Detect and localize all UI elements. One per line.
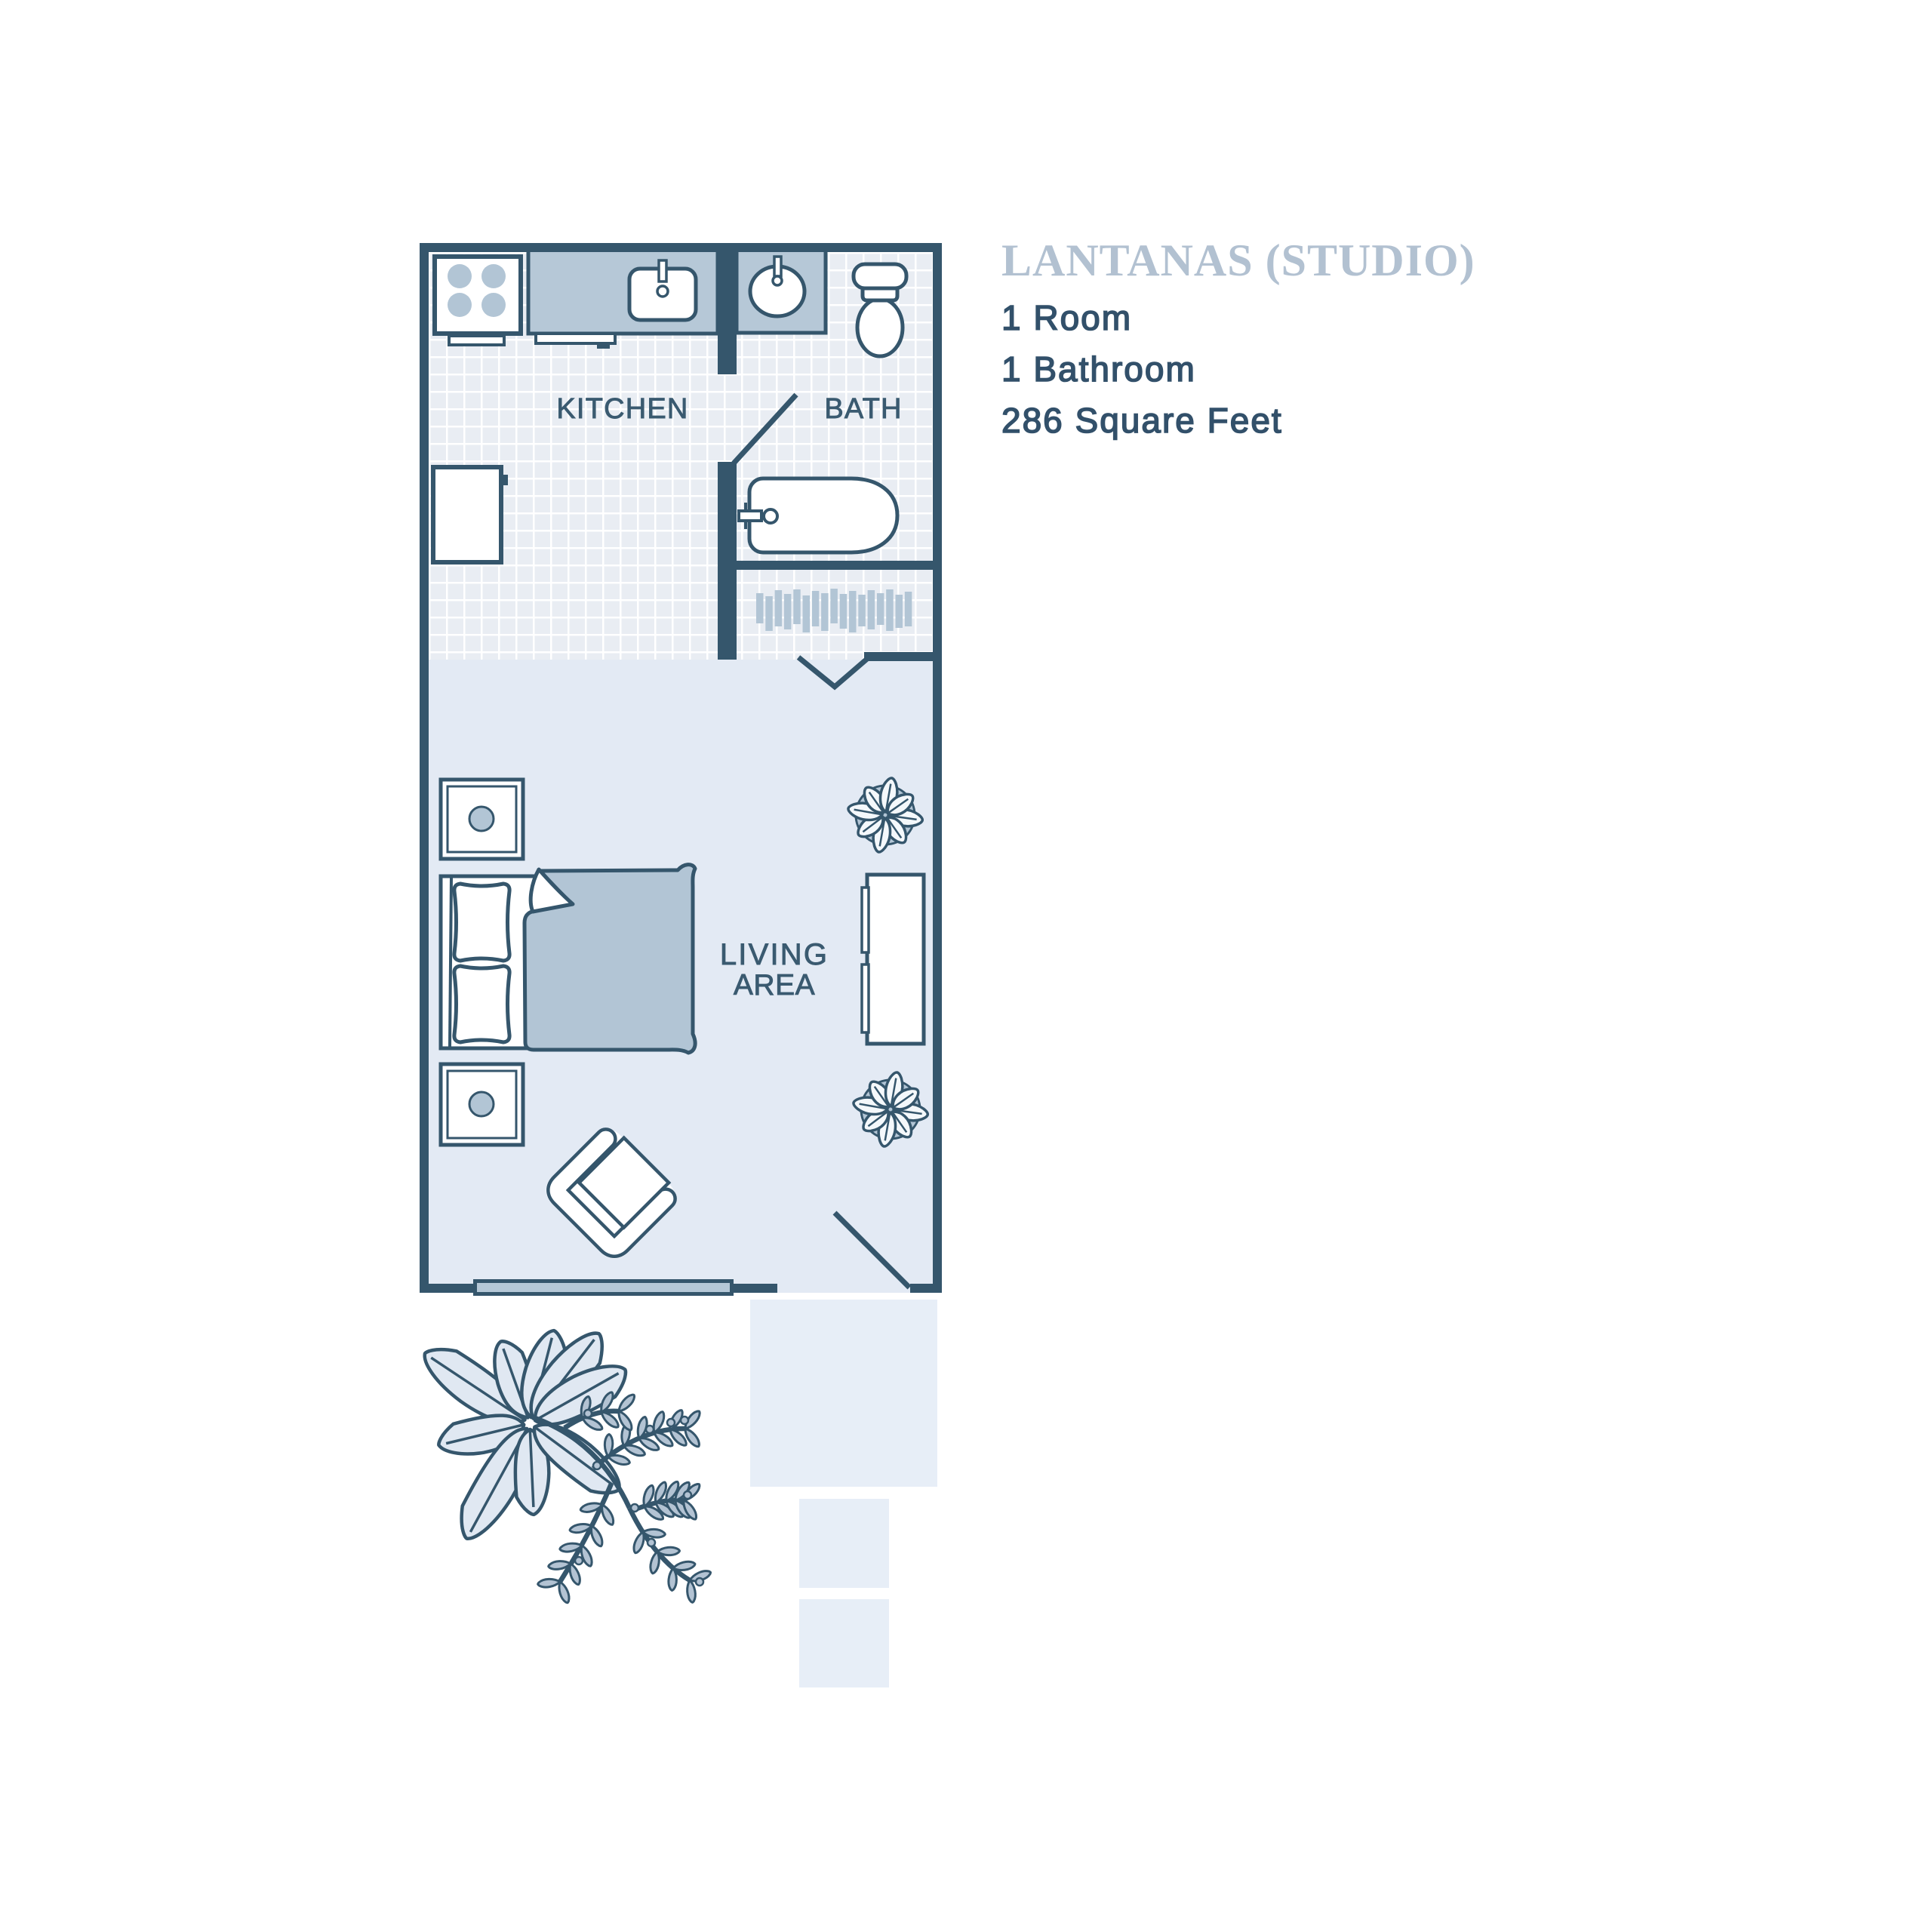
- svg-text:1 Bathroom: 1 Bathroom: [1001, 349, 1196, 389]
- svg-text:LIVING: LIVING: [720, 938, 829, 971]
- svg-text:286 Square Feet: 286 Square Feet: [1001, 401, 1283, 440]
- svg-text:LANTANAS (STUDIO): LANTANAS (STUDIO): [1001, 235, 1475, 285]
- svg-text:BATH: BATH: [824, 393, 902, 425]
- svg-text:AREA: AREA: [734, 969, 815, 1001]
- svg-text:KITCHEN: KITCHEN: [556, 393, 688, 425]
- svg-text:1 Room: 1 Room: [1001, 298, 1132, 337]
